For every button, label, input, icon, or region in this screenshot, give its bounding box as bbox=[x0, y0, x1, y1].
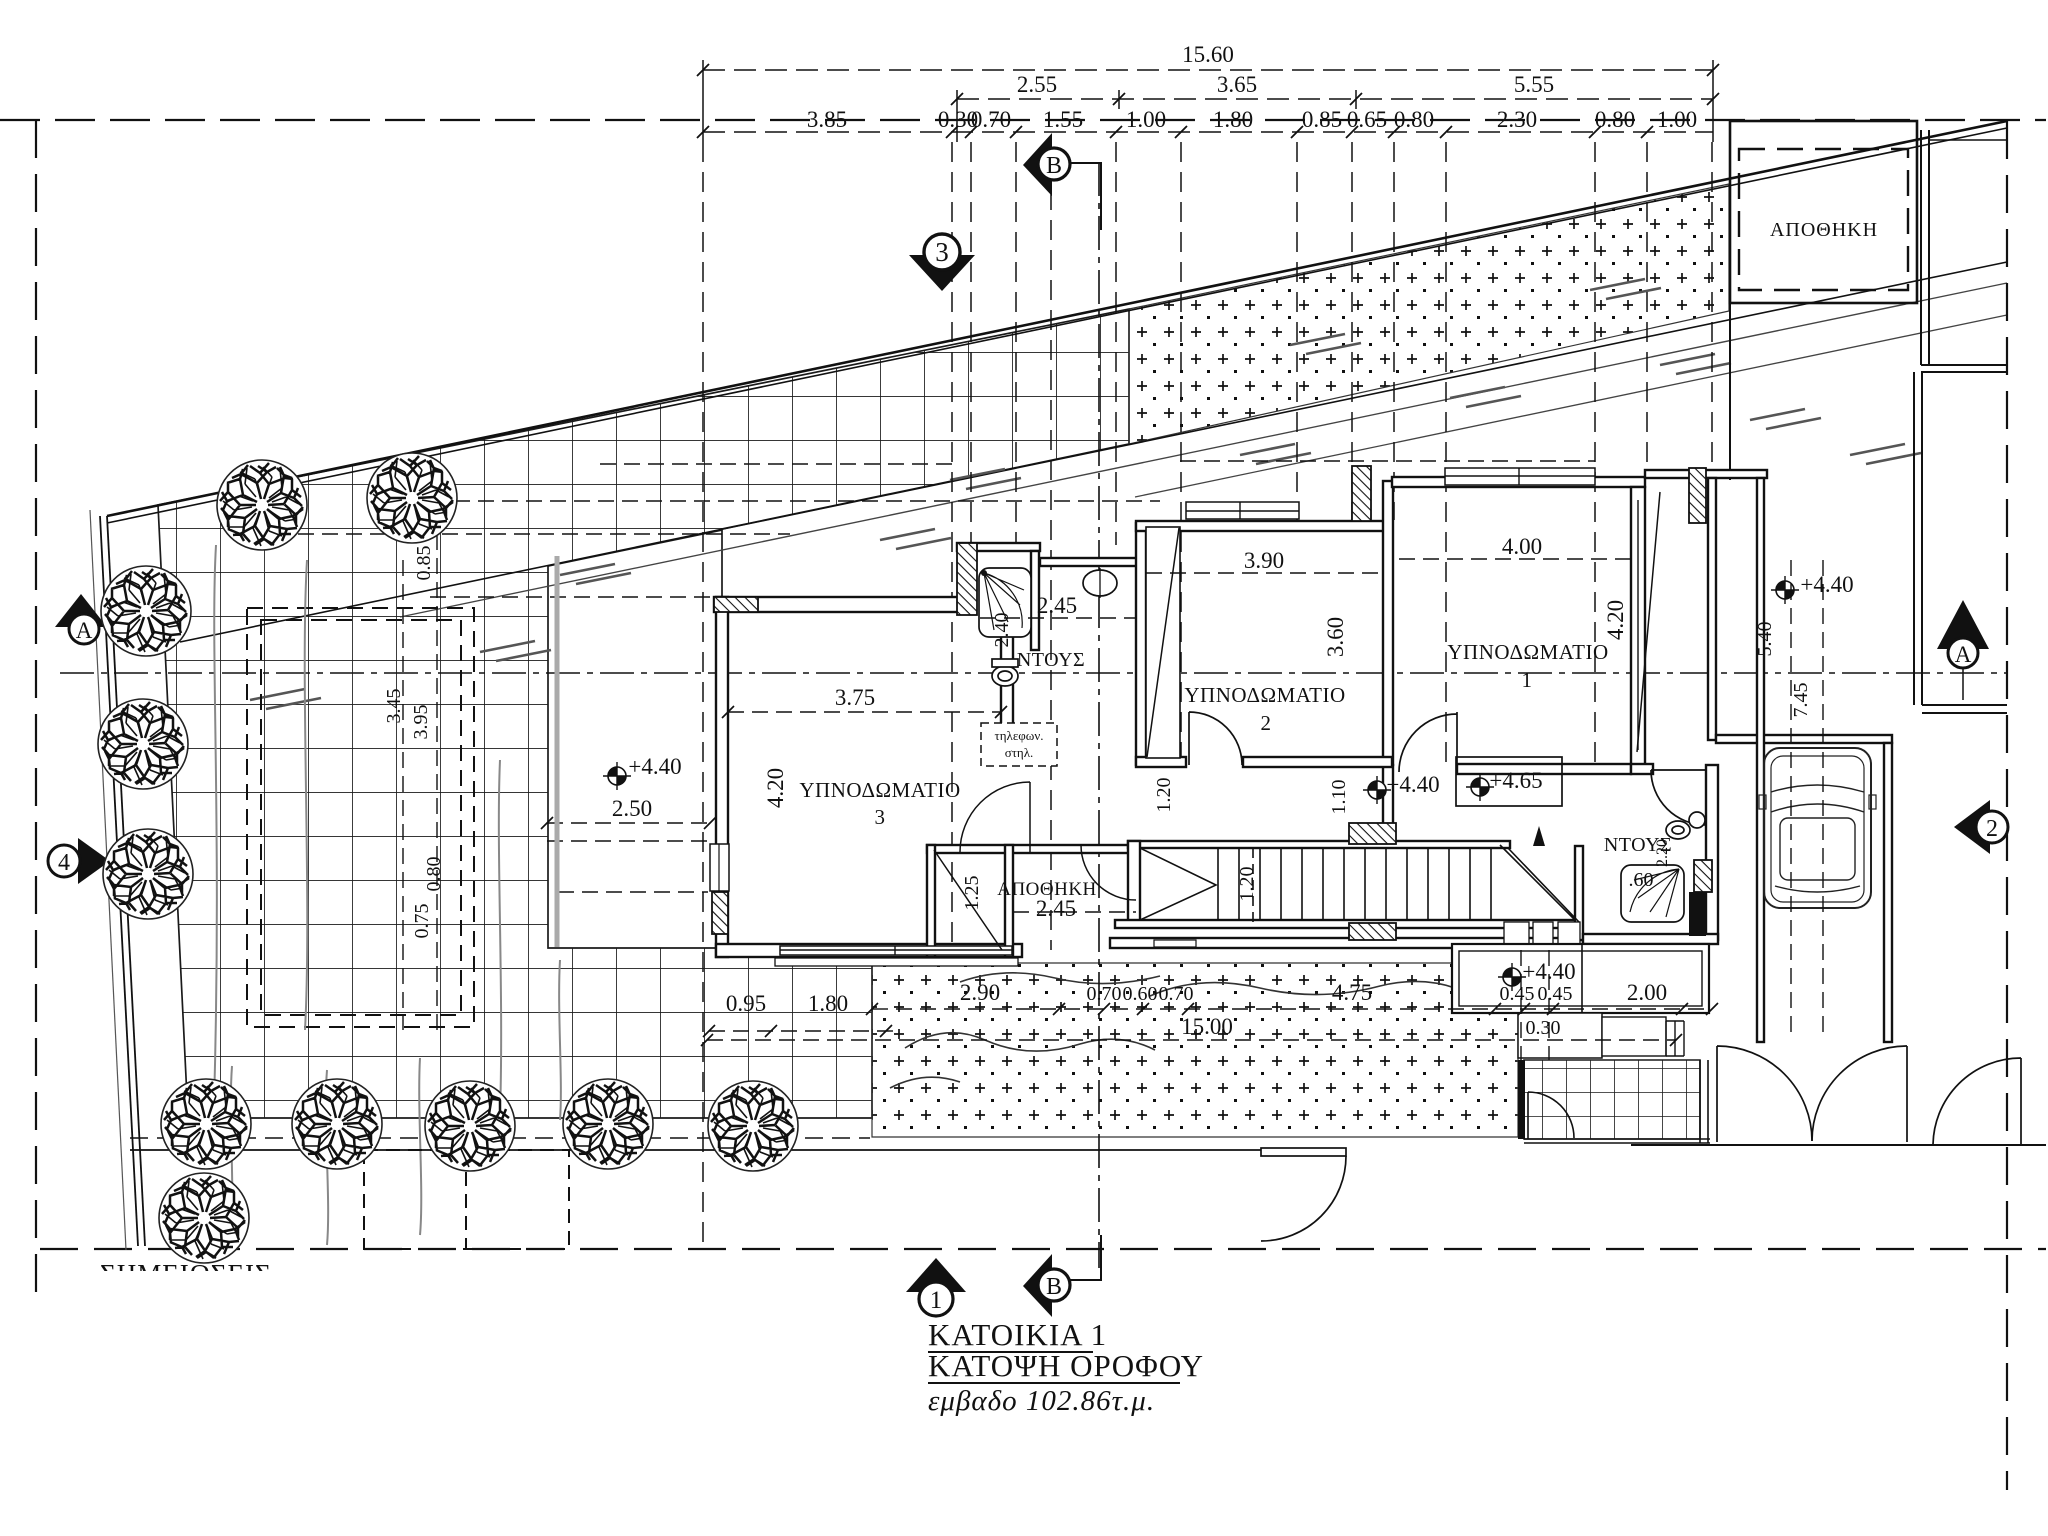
svg-text:+4.40: +4.40 bbox=[1386, 772, 1439, 797]
svg-text:B: B bbox=[1046, 153, 1062, 179]
svg-text:+4.40: +4.40 bbox=[628, 754, 681, 779]
svg-text:0.70: 0.70 bbox=[971, 107, 1011, 132]
svg-text:4.20: 4.20 bbox=[1603, 600, 1628, 640]
svg-text:1.00: 1.00 bbox=[1126, 107, 1166, 132]
svg-text:2.55: 2.55 bbox=[1017, 72, 1057, 97]
svg-text:A: A bbox=[1955, 642, 1972, 667]
svg-text:0.45: 0.45 bbox=[1500, 983, 1535, 1005]
svg-text:1.80: 1.80 bbox=[1213, 107, 1253, 132]
svg-text:1.20: 1.20 bbox=[1153, 778, 1175, 813]
svg-text:4.75: 4.75 bbox=[1332, 980, 1372, 1005]
svg-text:ΝΤΟΥΣ: ΝΤΟΥΣ bbox=[1017, 649, 1085, 671]
svg-text:3.90: 3.90 bbox=[1244, 548, 1284, 573]
svg-text:15.60: 15.60 bbox=[1182, 42, 1234, 67]
svg-text:2.45: 2.45 bbox=[1037, 593, 1077, 618]
svg-text:2.00: 2.00 bbox=[1627, 980, 1667, 1005]
svg-text:+4.65: +4.65 bbox=[1489, 768, 1542, 793]
svg-text:0.75: 0.75 bbox=[411, 904, 433, 939]
svg-text:+4.40: +4.40 bbox=[1800, 572, 1853, 597]
svg-text:ΥΠΝΟΔΩΜΑΤΙΟ: ΥΠΝΟΔΩΜΑΤΙΟ bbox=[1447, 640, 1608, 664]
svg-text:3: 3 bbox=[875, 805, 886, 829]
svg-text:7.45: 7.45 bbox=[1790, 683, 1812, 718]
svg-text:τηλεφων.: τηλεφων. bbox=[995, 728, 1044, 743]
svg-text:0.60: 0.60 bbox=[1123, 983, 1158, 1005]
svg-text:1: 1 bbox=[1522, 668, 1533, 692]
svg-text:0.80: 0.80 bbox=[1595, 107, 1635, 132]
svg-text:4.20: 4.20 bbox=[763, 768, 788, 808]
svg-text:3.65: 3.65 bbox=[1217, 72, 1257, 97]
svg-text:εμβαδο 102.86τ.μ.: εμβαδο 102.86τ.μ. bbox=[928, 1385, 1155, 1417]
svg-text:3.45: 3.45 bbox=[383, 689, 405, 724]
svg-text:1.55: 1.55 bbox=[1043, 107, 1083, 132]
svg-text:5.55: 5.55 bbox=[1514, 72, 1554, 97]
svg-text:ΚΑΤΟΙΚΙΑ 1: ΚΑΤΟΙΚΙΑ 1 bbox=[928, 1317, 1107, 1352]
svg-text:ΑΠΟΘΗΚΗ: ΑΠΟΘΗΚΗ bbox=[1770, 219, 1878, 241]
svg-text:4: 4 bbox=[58, 850, 70, 876]
svg-text:2.45: 2.45 bbox=[1036, 896, 1076, 921]
svg-text:0.80: 0.80 bbox=[1394, 107, 1434, 132]
svg-text:2.90: 2.90 bbox=[960, 980, 1000, 1005]
svg-text:ΥΠΝΟΔΩΜΑΤΙΟ: ΥΠΝΟΔΩΜΑΤΙΟ bbox=[799, 778, 960, 802]
svg-text:3.60: 3.60 bbox=[1323, 617, 1348, 657]
svg-text:2: 2 bbox=[1986, 816, 1998, 842]
svg-text:4.00: 4.00 bbox=[1502, 534, 1542, 559]
svg-text:1.00: 1.00 bbox=[1657, 107, 1697, 132]
svg-text:2: 2 bbox=[1261, 711, 1272, 735]
svg-text:1.25: 1.25 bbox=[961, 876, 983, 911]
svg-text:ΚΑΤΟΨΗ ΟΡΟΦΟΥ: ΚΑΤΟΨΗ ΟΡΟΦΟΥ bbox=[928, 1348, 1204, 1383]
svg-text:0.80: 0.80 bbox=[423, 857, 445, 892]
svg-text:1.20: 1.20 bbox=[1236, 867, 1258, 902]
svg-text:1.80: 1.80 bbox=[808, 991, 848, 1016]
svg-text:0.30: 0.30 bbox=[1526, 1017, 1561, 1039]
svg-text:2.20: 2.20 bbox=[1654, 839, 1671, 867]
svg-text:3.95: 3.95 bbox=[410, 705, 432, 740]
svg-text:2.50: 2.50 bbox=[612, 796, 652, 821]
svg-text:0.95: 0.95 bbox=[726, 991, 766, 1016]
svg-text:0.65: 0.65 bbox=[1347, 107, 1387, 132]
svg-text:5.40: 5.40 bbox=[1754, 622, 1776, 657]
svg-text:0.85: 0.85 bbox=[413, 546, 435, 581]
svg-text:0.70: 0.70 bbox=[1159, 983, 1194, 1005]
svg-text:3: 3 bbox=[935, 237, 949, 267]
svg-text:1.10: 1.10 bbox=[1328, 780, 1350, 815]
svg-text:.60: .60 bbox=[1629, 869, 1654, 891]
svg-text:0.85: 0.85 bbox=[1302, 107, 1342, 132]
svg-text:3.85: 3.85 bbox=[807, 107, 847, 132]
svg-text:ΥΠΝΟΔΩΜΑΤΙΟ: ΥΠΝΟΔΩΜΑΤΙΟ bbox=[1184, 683, 1345, 707]
svg-text:A: A bbox=[76, 618, 93, 643]
svg-text:B: B bbox=[1046, 1274, 1062, 1300]
svg-text:1: 1 bbox=[930, 1287, 943, 1314]
svg-text:0.45: 0.45 bbox=[1538, 983, 1573, 1005]
svg-text:15.00: 15.00 bbox=[1181, 1014, 1233, 1039]
svg-text:3.75: 3.75 bbox=[835, 685, 875, 710]
svg-text:2.30: 2.30 bbox=[1497, 107, 1537, 132]
svg-text:στηλ.: στηλ. bbox=[1005, 745, 1034, 760]
svg-text:0.70: 0.70 bbox=[1087, 983, 1122, 1005]
